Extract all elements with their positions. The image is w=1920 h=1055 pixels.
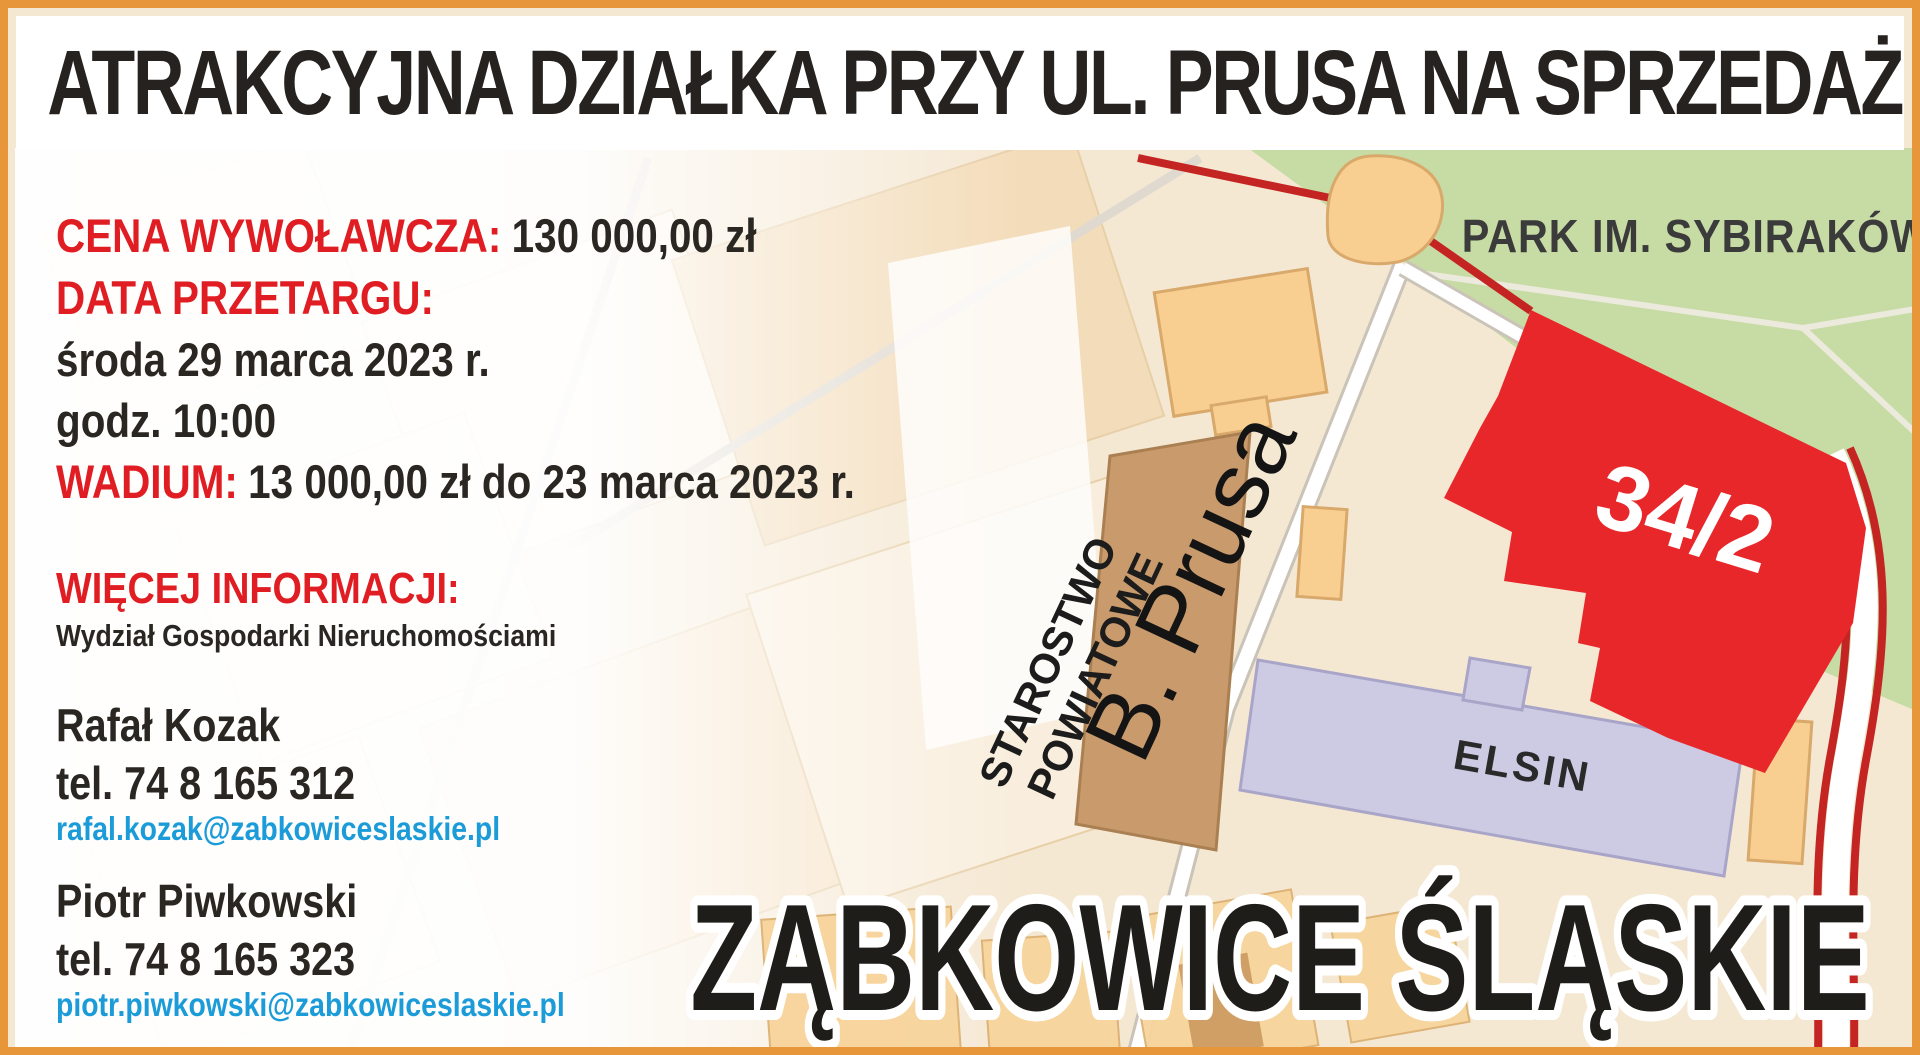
contact-phone-text: tel. 74 8 165 312 bbox=[56, 757, 355, 809]
price-value: 130 000,00 zł bbox=[512, 209, 757, 262]
deposit-value: 13 000,00 zł do 23 marca 2023 r. bbox=[248, 455, 855, 508]
contact-phone-text: tel. 74 8 165 323 bbox=[56, 933, 355, 985]
contact-2-name: Piotr Piwkowski bbox=[56, 874, 357, 928]
auction-date-line: środa 29 marca 2023 r. bbox=[56, 332, 490, 387]
more-info-heading: WIĘCEJ INFORMACJI: bbox=[56, 564, 460, 614]
price-label: CENA WYWOŁAWCZA: bbox=[56, 209, 501, 262]
poster-title: ATRAKCYJNA DZIAŁKA PRZY UL. PRUSA NA SPR… bbox=[16, 31, 1902, 136]
deposit-label: WADIUM: bbox=[56, 455, 238, 508]
auction-date: środa 29 marca 2023 r. bbox=[56, 333, 490, 386]
contact-1-phone: tel. 74 8 165 312 bbox=[56, 756, 355, 810]
department-name: Wydział Gospodarki Nieruchomościami bbox=[56, 618, 556, 653]
department-line: Wydział Gospodarki Nieruchomościami bbox=[56, 618, 556, 654]
auction-date-label: DATA PRZETARGU: bbox=[56, 271, 434, 324]
contact-name-text: Piotr Piwkowski bbox=[56, 875, 357, 927]
auction-time-line: godz. 10:00 bbox=[56, 393, 276, 448]
deposit-line: WADIUM:13 000,00 zł do 23 marca 2023 r. bbox=[56, 454, 855, 509]
contact-1-name: Rafał Kozak bbox=[56, 698, 280, 752]
park-label: PARK IM. SYBIRAKÓW bbox=[1462, 210, 1920, 263]
contact-name-text: Rafał Kozak bbox=[56, 699, 280, 751]
contact-email-text: rafal.kozak@zabkowiceslaskie.pl bbox=[56, 810, 500, 847]
contact-2-phone: tel. 74 8 165 323 bbox=[56, 932, 355, 986]
contact-2-email: piotr.piwkowski@zabkowiceslaskie.pl bbox=[56, 986, 565, 1024]
poster-root: PARK IM. SYBIRAKÓW 34/2 STAROSTWO POWIAT… bbox=[0, 0, 1920, 1055]
price-line: CENA WYWOŁAWCZA:130 000,00 zł bbox=[56, 208, 757, 263]
auction-date-label-line: DATA PRZETARGU: bbox=[56, 270, 434, 325]
contact-email-text: piotr.piwkowski@zabkowiceslaskie.pl bbox=[56, 986, 565, 1023]
more-info-label: WIĘCEJ INFORMACJI: bbox=[56, 564, 460, 613]
contact-1-email: rafal.kozak@zabkowiceslaskie.pl bbox=[56, 810, 500, 848]
auction-time: godz. 10:00 bbox=[56, 394, 276, 447]
title-banner: ATRAKCYJNA DZIAŁKA PRZY UL. PRUSA NA SPR… bbox=[16, 16, 1904, 150]
info-panel: CENA WYWOŁAWCZA:130 000,00 zł DATA PRZET… bbox=[8, 8, 1008, 1055]
